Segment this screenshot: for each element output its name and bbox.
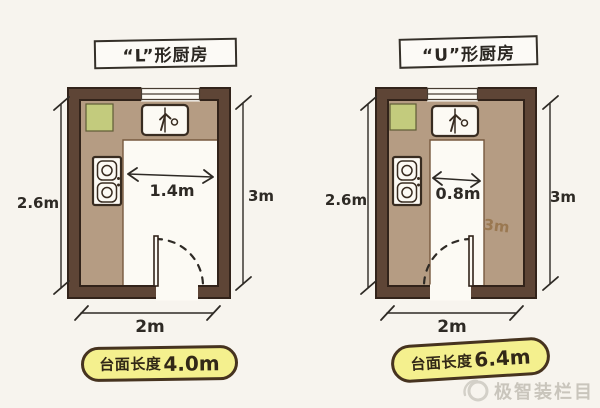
cutting-board [390, 104, 416, 130]
sink-icon [142, 105, 188, 135]
dim-bottom-width-u: 2m [381, 306, 523, 337]
dim-text-right-u: 3m [550, 188, 576, 206]
stove-icon [393, 157, 421, 205]
stove-icon [93, 157, 121, 205]
dim-text-right-l: 3m [248, 187, 274, 205]
door-leaf [469, 236, 473, 286]
dim-text-aisle-u: 0.8m [435, 184, 480, 203]
label-prefix: 台面长度 [410, 349, 473, 374]
door-leaf [154, 236, 158, 286]
dim-left-height-l: 2.6m [17, 97, 69, 294]
counter-length-label-l: 台面长度 4.0m [81, 345, 238, 382]
window-icon [141, 87, 200, 102]
kitchen-layouts-illustration: “L”形厨房 “U”形厨房 [0, 0, 600, 408]
label-value: 4.0m [163, 351, 220, 376]
cutting-board [86, 104, 113, 131]
dim-text-left-u: 2.6m [325, 191, 367, 209]
dim-right-height-l: 3m [236, 96, 274, 290]
door-opening [156, 285, 198, 301]
door-opening [430, 285, 471, 301]
window-icon [427, 87, 478, 102]
watermark: 极智装栏目 [462, 376, 594, 406]
plan-l-shape: 2.6m 3m 2m 1.4m [17, 87, 274, 338]
dim-text-bottom-l: 2m [135, 317, 165, 337]
dim-right-height-u: 3m [543, 96, 576, 290]
swirl-logo-icon [462, 376, 492, 406]
dim-text-left-l: 2.6m [17, 194, 59, 212]
counter-length-note: 3m [483, 216, 511, 237]
label-prefix: 台面长度 [99, 353, 161, 375]
dim-text-aisle-l: 1.4m [149, 181, 194, 200]
label-value: 6.4m [474, 344, 532, 371]
dim-left-height-u: 2.6m [325, 97, 376, 294]
watermark-text: 极智装栏目 [494, 378, 594, 404]
dim-bottom-width-l: 2m [75, 306, 220, 337]
plan-u-shape: 3m 2.6m 3m 2m [325, 87, 576, 338]
sink-icon [432, 106, 478, 136]
dim-text-bottom-u: 2m [437, 317, 467, 337]
